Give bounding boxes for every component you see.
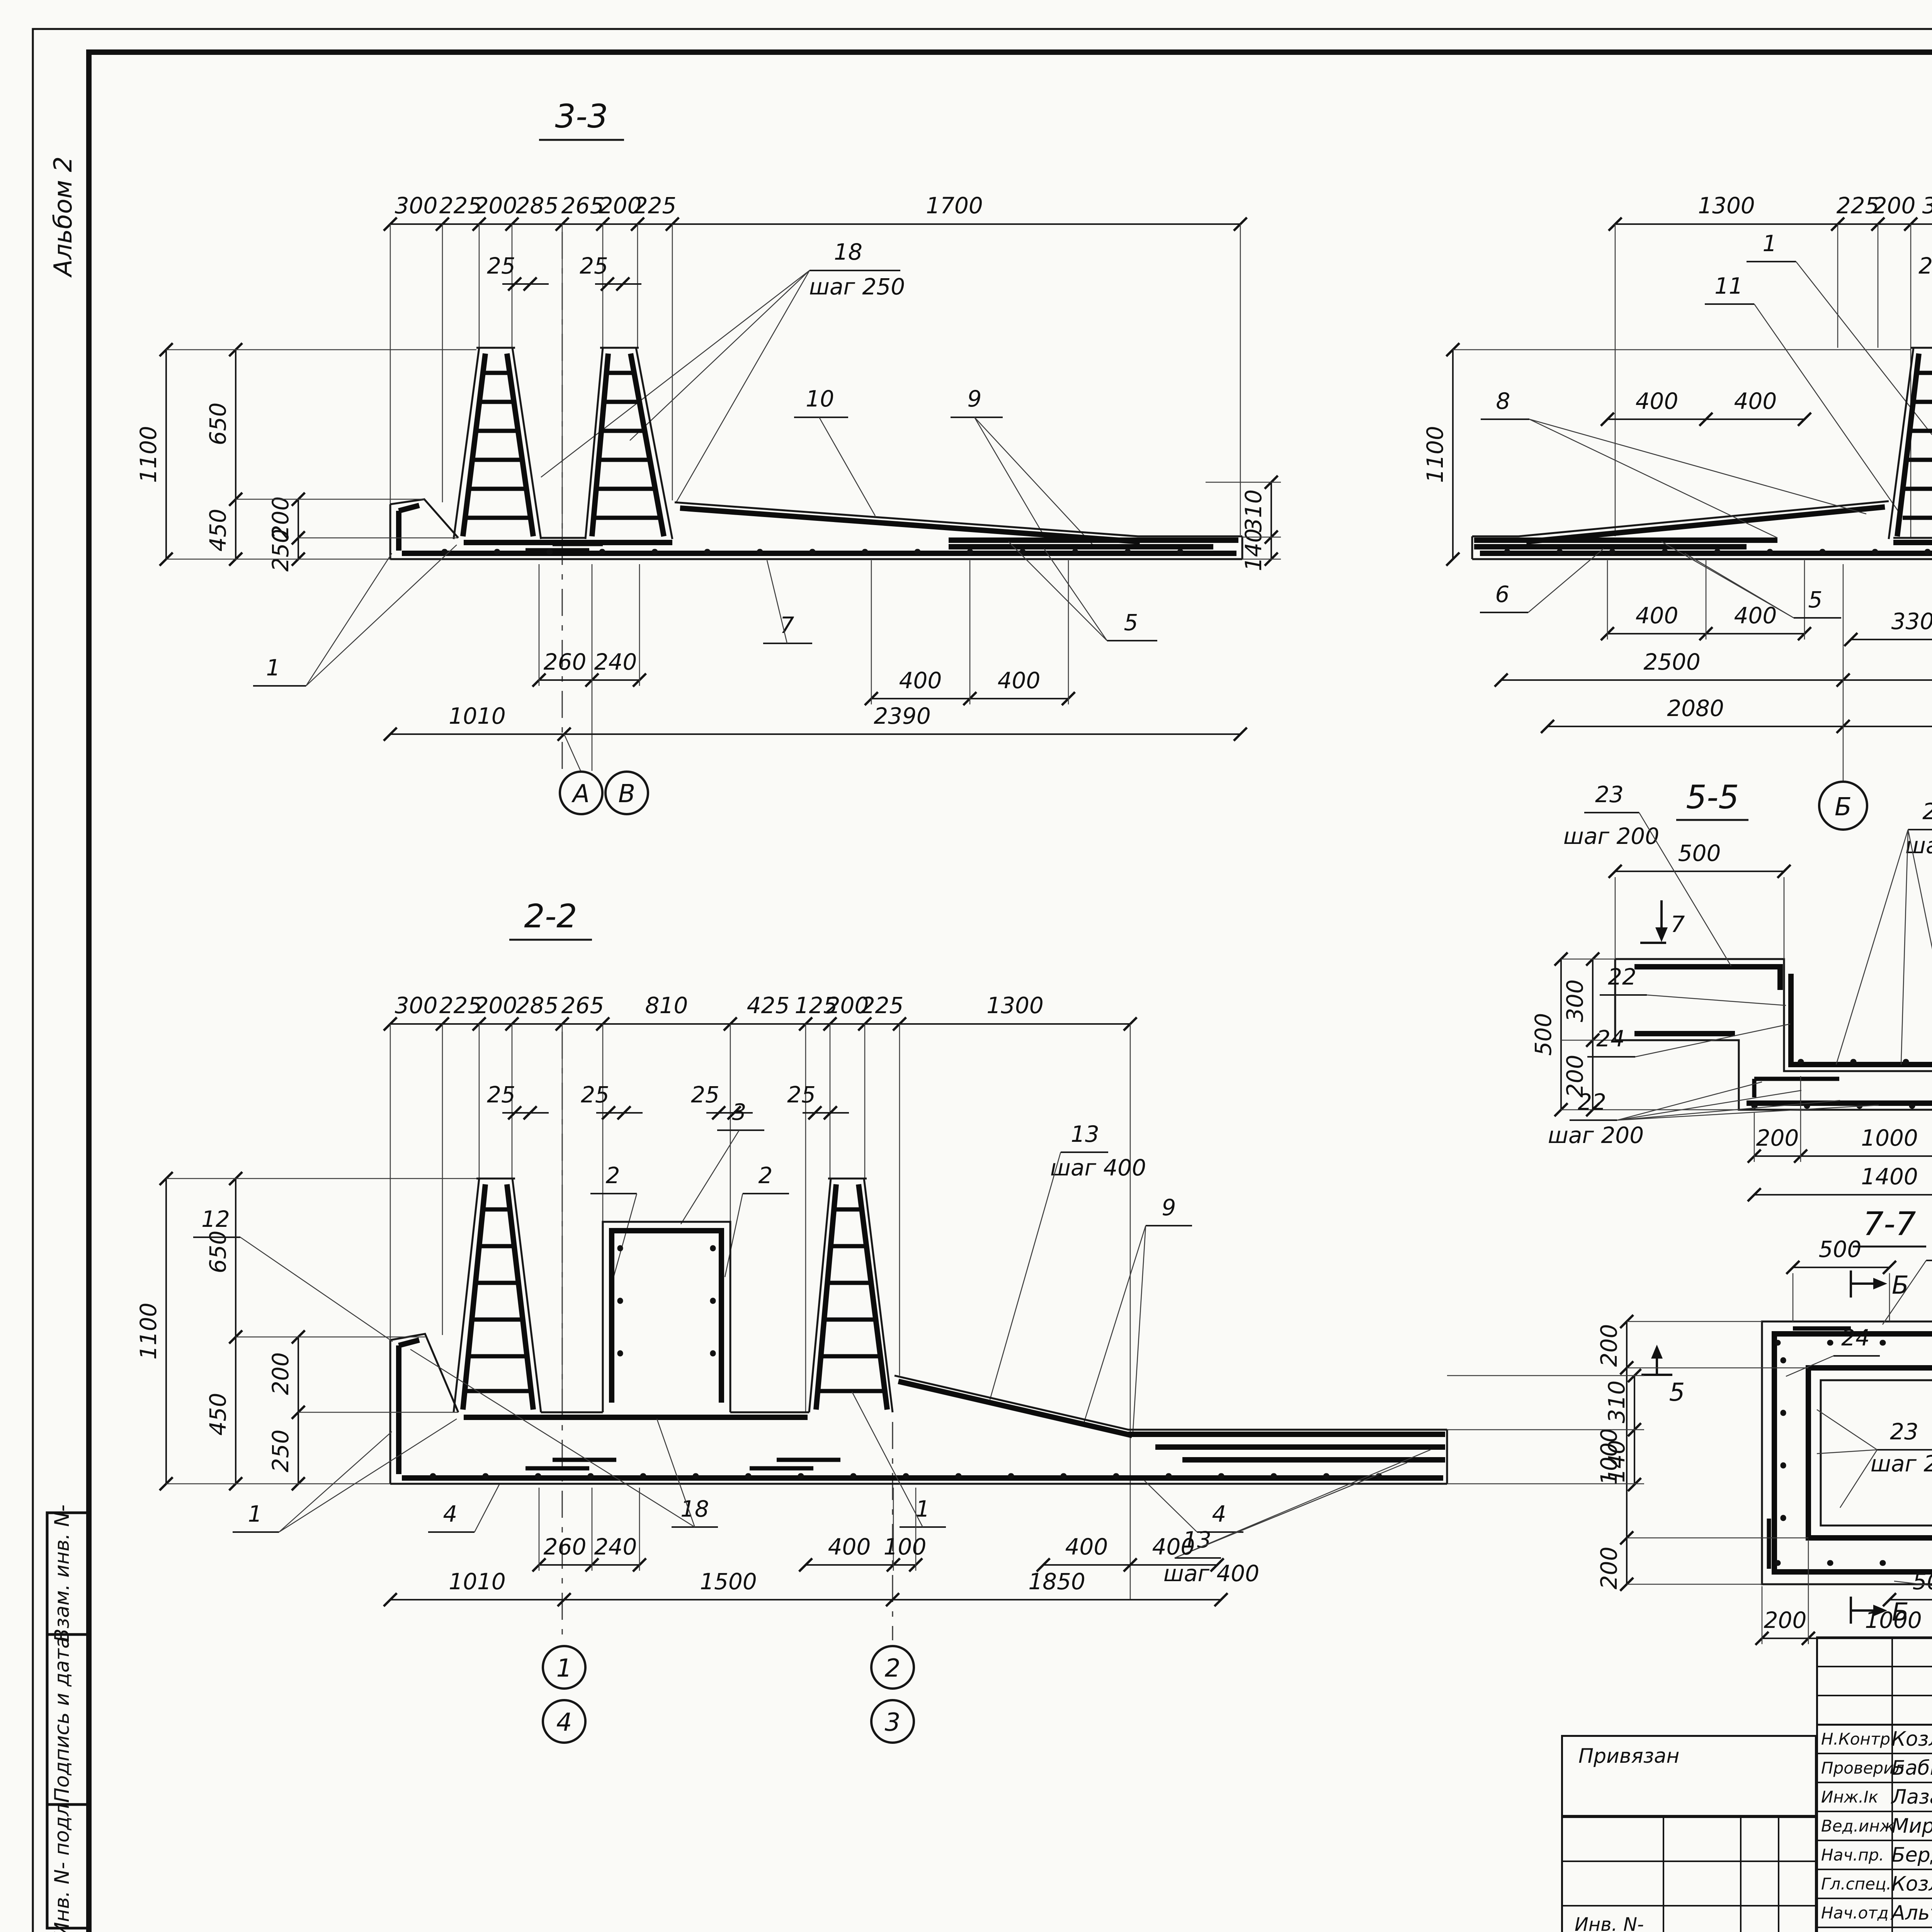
slab-rebar-laps xyxy=(526,1460,840,1468)
dim-label: 450 xyxy=(205,1393,231,1436)
dim-label: 355 xyxy=(1922,192,1932,219)
leaders xyxy=(1083,1226,1146,1432)
callout: шаг 200 xyxy=(1548,1122,1644,1148)
leader xyxy=(819,417,875,516)
dim-label: 25 xyxy=(487,1082,515,1108)
grid-line xyxy=(1740,1818,1742,1932)
dim-label: 260 xyxy=(544,1534,587,1560)
sheet-frame: 1. xyxy=(33,19,1932,1932)
channel-lbars xyxy=(1754,1079,1932,1097)
axis-label: 1 xyxy=(556,1654,572,1683)
grid-line xyxy=(1563,1861,1815,1862)
callout: 12 xyxy=(201,1206,230,1232)
staff-row: Вед.инж Миренская xyxy=(1818,1811,1932,1840)
dim-label: 400 xyxy=(1734,388,1777,414)
dim-label: 285 xyxy=(516,992,559,1019)
wall-rebar xyxy=(463,1184,533,1410)
wall-rebar xyxy=(463,354,533,536)
album-label: Альбом 2 xyxy=(49,156,78,278)
staff-role: Нач.отд xyxy=(1818,1903,1891,1922)
leader xyxy=(990,1152,1061,1400)
section-arrowhead xyxy=(1651,1345,1663,1359)
leader xyxy=(614,1194,637,1277)
grid-line xyxy=(1563,1905,1815,1906)
callout: 18 xyxy=(834,239,862,265)
dim-label: 1300 xyxy=(1698,192,1755,219)
section-2-2: 2-2 300 225 200 285 265 810 425 125 200 … xyxy=(135,897,1644,1743)
margin-label: Подпись и дата xyxy=(51,1636,74,1803)
dim-label: 400 xyxy=(1636,388,1679,414)
dim-label: 310 xyxy=(1604,1381,1630,1423)
section-3-3: 3-3 300 225 200 285 265 200 225 1700 25 … xyxy=(135,97,1281,814)
dim-label: 140 xyxy=(1240,529,1267,571)
section-5-5: 5-5 500 500 24 шаг 200 23 шаг 200 23 шаг… xyxy=(1530,776,1932,1201)
dim-label: 500 xyxy=(1678,840,1721,866)
section-title: 7-7 xyxy=(1863,1205,1916,1243)
callout: 9 xyxy=(968,386,982,412)
margin-label: Взам. инв. N- xyxy=(51,1505,74,1643)
dim-label: 400 xyxy=(1152,1534,1195,1560)
dim-label: 240 xyxy=(594,649,637,675)
dim-label: 200 xyxy=(1764,1607,1807,1633)
axis-label: А xyxy=(571,780,590,808)
axis-label: В xyxy=(618,780,635,808)
axis-label: 2 xyxy=(885,1654,901,1683)
callout: 13 xyxy=(1071,1121,1099,1147)
dim-label: 1010 xyxy=(449,703,506,729)
dim-label: 400 xyxy=(899,667,942,694)
callout: 3 xyxy=(732,1099,747,1125)
grid-line xyxy=(1818,1695,1932,1696)
axis-extension xyxy=(564,734,581,772)
callout: 2 xyxy=(759,1162,773,1189)
callout: 7 xyxy=(780,612,794,638)
margin-stamps: Взам. инв. N- Подпись и дата Инв. N- под… xyxy=(47,156,89,1932)
dim-ticks xyxy=(508,1106,837,1119)
dim-label: 500 xyxy=(1913,1568,1932,1595)
section-title: 5-5 xyxy=(1686,778,1739,816)
callout: шаг 200 xyxy=(1563,823,1659,849)
staff-name: Лазарева xyxy=(1891,1786,1932,1809)
wall-rebar xyxy=(592,354,664,536)
dim-label: 1000 xyxy=(1861,1125,1918,1151)
axis-label: 3 xyxy=(885,1708,901,1737)
dim-label: 300 xyxy=(1562,980,1588,1022)
dim-label: 650 xyxy=(205,403,231,446)
attach-box: Привязан xyxy=(1561,1735,1817,1817)
dim-label: 400 xyxy=(828,1534,871,1560)
callout: 24 xyxy=(1596,1026,1625,1052)
staff-row: Гл.спец. Козловичер xyxy=(1818,1869,1932,1898)
dim-label: 25 xyxy=(581,1082,609,1108)
dim-label: 2390 xyxy=(874,703,931,729)
section-arrowhead xyxy=(1655,927,1668,942)
leaders xyxy=(1009,542,1107,641)
callout: 8 xyxy=(1496,388,1510,414)
staff-row: Нач.пр. Бердичевская xyxy=(1818,1840,1932,1869)
dim-label: 225 xyxy=(634,192,677,219)
staff-row: Проверил Бабышева xyxy=(1818,1753,1932,1782)
callout: 10 xyxy=(806,386,834,412)
dim-label: 25 xyxy=(1918,253,1932,279)
leaders xyxy=(541,270,810,502)
staff-role: Нач.пр. xyxy=(1818,1845,1891,1864)
dim-label: 1100 xyxy=(1422,426,1448,483)
slab-rebar xyxy=(399,1340,1445,1478)
slab-outline xyxy=(390,499,1242,559)
dim-label: 285 xyxy=(516,192,559,219)
dim-label: 400 xyxy=(998,667,1041,694)
callout: 24 xyxy=(1841,1325,1870,1351)
callout: 1 xyxy=(266,655,281,681)
dim-label: 310 xyxy=(1240,490,1267,532)
staff-name: Альтшулер xyxy=(1891,1901,1932,1925)
dim-label: 2080 xyxy=(1667,695,1724,721)
section-label: 7 xyxy=(1671,911,1685,937)
dim-label: 200 xyxy=(1873,192,1916,219)
dim-label: 2500 xyxy=(1643,649,1701,675)
leader xyxy=(852,1392,923,1527)
dim-label: 1400 xyxy=(1861,1163,1918,1190)
leader xyxy=(240,1237,393,1342)
staff-table: Н.Контр. Козловичер Проверил Бабышева Ин… xyxy=(1816,1636,1932,1932)
staff-name: Бабышева xyxy=(1891,1757,1932,1780)
section-label: Б xyxy=(1892,1271,1909,1300)
dim-label: 100 xyxy=(884,1534,927,1560)
leader xyxy=(725,1194,743,1277)
attach-label: Привязан xyxy=(1563,1737,1815,1768)
callout: 23 xyxy=(1595,781,1624,808)
staff-name: Козловичер xyxy=(1891,1872,1932,1896)
staff-name: Козловичер xyxy=(1891,1728,1932,1751)
callout: 2 xyxy=(606,1162,620,1189)
inv-label: Инв. N- xyxy=(1575,1914,1644,1932)
callout: 11 xyxy=(1714,273,1743,299)
staff-row: Инж.Iк Лазарева xyxy=(1818,1782,1932,1811)
staff-role: Проверил xyxy=(1818,1759,1891,1777)
dim-label: 500 xyxy=(1530,1013,1556,1056)
outer-border xyxy=(33,29,1932,1932)
dim-label: 1300 xyxy=(986,992,1044,1019)
dim-label: 250 xyxy=(267,1430,294,1473)
dim-label: 260 xyxy=(544,649,587,675)
dim-label: 810 xyxy=(645,992,688,1019)
sections-canvas: 1. Взам. инв. N- Подпись и дата Инв. N- … xyxy=(0,0,1932,1932)
leaders xyxy=(306,545,457,686)
extension-lines xyxy=(390,1024,1130,1600)
dim-label: 265 xyxy=(561,992,604,1019)
callout: шаг 250 xyxy=(809,274,905,300)
staff-role: Вед.инж xyxy=(1818,1816,1891,1835)
callout: 1 xyxy=(248,1501,262,1527)
callout: 24 xyxy=(1922,798,1932,825)
leader xyxy=(1647,995,1786,1005)
staff-role: Н.Контр. xyxy=(1818,1730,1891,1748)
leader xyxy=(474,1485,499,1532)
section-title: 2-2 xyxy=(524,897,577,935)
dim-label: 200 xyxy=(474,992,517,1019)
grid-line xyxy=(1663,1818,1664,1932)
dim-label: 25 xyxy=(580,253,608,279)
leader xyxy=(767,560,787,643)
callout: шаг 200 xyxy=(1871,1451,1932,1477)
extension-lines xyxy=(1615,224,1932,537)
dim-label: 425 xyxy=(747,992,790,1019)
dim-label: 1010 xyxy=(449,1568,506,1595)
grid-line xyxy=(1818,1666,1932,1667)
callout: 5 xyxy=(1808,587,1823,613)
drawing-sheet: 1. Взам. инв. N- Подпись и дата Инв. N- … xyxy=(0,0,1932,1932)
dim-label: 1100 xyxy=(135,426,162,483)
callout: 1 xyxy=(1763,230,1777,257)
dim-label: 200 xyxy=(1596,1547,1622,1590)
dim-label: 240 xyxy=(594,1534,637,1560)
dim-label: 1100 xyxy=(135,1303,162,1360)
staff-role: Инж.Iк xyxy=(1818,1787,1891,1806)
slab-rebar xyxy=(1474,507,1932,553)
dim-label: 265 xyxy=(561,192,604,219)
grid-line xyxy=(1778,1818,1779,1932)
dim-label: 1700 xyxy=(926,192,983,219)
callout: 5 xyxy=(1124,609,1138,636)
leader xyxy=(1145,1481,1197,1532)
dim-label: 200 xyxy=(1596,1324,1622,1367)
leaders xyxy=(1836,830,1932,1065)
attach-grid: Инв. N- xyxy=(1561,1816,1817,1932)
section-title: 3-3 xyxy=(555,97,608,135)
dim-label: 1000 xyxy=(1865,1607,1922,1633)
dim-label: 25 xyxy=(787,1082,816,1108)
dim-label: 330 xyxy=(1891,608,1932,634)
callout: 9 xyxy=(1162,1194,1176,1221)
staff-name: Бердичевская xyxy=(1891,1844,1932,1867)
staff-name: Миренская xyxy=(1891,1815,1932,1838)
callout: 4 xyxy=(1212,1501,1226,1527)
axis-label: 4 xyxy=(556,1708,572,1737)
dim-label: 500 xyxy=(1819,1236,1862,1262)
callout: 22 xyxy=(1608,964,1636,990)
section-7-7: 7-7 500 21 Б Б 5 5 xyxy=(1596,1205,1932,1645)
dim-label: 450 xyxy=(205,509,231,552)
dim-label: 400 xyxy=(1636,602,1679,629)
callout: 22 xyxy=(1578,1089,1606,1115)
callout: шаг 400 xyxy=(1050,1155,1146,1181)
dim-label: 300 xyxy=(395,192,438,219)
dim-label: 200 xyxy=(267,1352,294,1395)
dim-label: 400 xyxy=(1734,602,1777,629)
dim-label: 25 xyxy=(487,253,515,279)
dim-label: 140 xyxy=(1604,1440,1630,1483)
staff-role: Гл.спец. xyxy=(1818,1874,1891,1893)
box-rebar xyxy=(612,1231,721,1403)
dim-label: 225 xyxy=(861,992,904,1019)
dim-label: 200 xyxy=(1756,1125,1799,1151)
dim-label: 1850 xyxy=(1028,1568,1085,1595)
wall-rebar xyxy=(1897,354,1932,536)
dim-label: 1500 xyxy=(700,1568,757,1595)
axis-label: Б xyxy=(1835,793,1852,821)
staff-row: Н.Контр. Козловичер xyxy=(1818,1725,1932,1753)
section-arrowhead xyxy=(1873,1278,1887,1289)
dim-label: 300 xyxy=(395,992,438,1019)
callout: 23 xyxy=(1890,1418,1918,1445)
callout: 4 xyxy=(443,1501,457,1527)
staff-row: Нач.отд Альтшулер xyxy=(1818,1898,1932,1927)
section-label: 5 xyxy=(1669,1378,1685,1407)
dim-label: 250 xyxy=(267,529,294,572)
margin-label: Инв. N- подл. xyxy=(51,1797,74,1932)
leaders xyxy=(410,1349,695,1527)
dim-label: 400 xyxy=(1065,1534,1108,1560)
dim-label: 200 xyxy=(474,192,517,219)
callout: 6 xyxy=(1495,581,1510,607)
section-4-4: 4-4 1300 225 200 355 195 200 225 1300 25… xyxy=(1422,97,1932,830)
dim-label: 25 xyxy=(691,1082,719,1108)
